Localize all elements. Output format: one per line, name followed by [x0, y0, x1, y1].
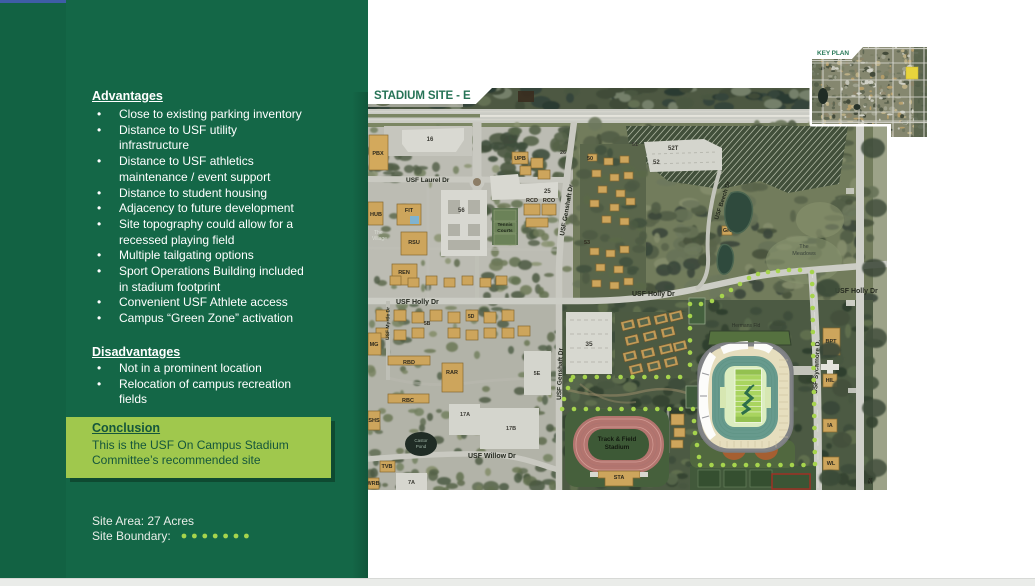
svg-text:RCD: RCD — [526, 198, 538, 204]
svg-text:56: 56 — [458, 208, 465, 214]
svg-text:5B: 5B — [424, 321, 431, 327]
svg-text:The: The — [799, 244, 808, 250]
svg-text:Track & Field: Track & Field — [598, 436, 637, 443]
svg-text:USF Myrtle Dr: USF Myrtle Dr — [385, 307, 392, 340]
svg-text:RAR: RAR — [446, 370, 458, 376]
svg-text:FIT: FIT — [405, 208, 414, 214]
svg-text:Stadium: Stadium — [605, 444, 630, 451]
svg-text:26: 26 — [560, 150, 566, 156]
svg-text:17A: 17A — [460, 412, 470, 418]
svg-text:RBD: RBD — [403, 360, 415, 366]
svg-text:USF Willow Dr: USF Willow Dr — [468, 453, 516, 460]
svg-text:Meadows: Meadows — [792, 251, 816, 257]
svg-text:TVB: TVB — [382, 464, 393, 470]
svg-text:52: 52 — [653, 160, 660, 166]
svg-text:35: 35 — [585, 341, 593, 348]
svg-text:St: St — [868, 478, 874, 484]
svg-text:SHS: SHS — [368, 418, 380, 424]
svg-text:USF Holly Dr: USF Holly Dr — [835, 288, 878, 295]
svg-text:Pond: Pond — [416, 444, 427, 449]
svg-text:5E: 5E — [534, 371, 541, 377]
svg-text:WL: WL — [827, 461, 836, 467]
svg-text:Courts: Courts — [497, 228, 513, 234]
svg-text:53: 53 — [584, 240, 590, 246]
svg-text:16: 16 — [427, 137, 434, 143]
svg-text:Village: Village — [372, 236, 387, 242]
svg-text:5D: 5D — [468, 314, 475, 320]
svg-text:RBC: RBC — [402, 398, 414, 404]
svg-text:25: 25 — [544, 189, 551, 195]
svg-text:WRB: WRB — [368, 481, 380, 487]
svg-text:Hermans Fld: Hermans Fld — [732, 323, 761, 329]
svg-text:7A: 7A — [408, 480, 415, 486]
svg-text:USF Laurel Dr: USF Laurel Dr — [406, 177, 450, 184]
svg-text:51: 51 — [632, 142, 638, 148]
svg-text:IA: IA — [827, 423, 833, 429]
svg-text:Tennis: Tennis — [497, 222, 512, 228]
svg-text:STA: STA — [614, 475, 625, 481]
svg-text:HUB: HUB — [370, 212, 382, 218]
svg-text:UPB: UPB — [514, 156, 526, 162]
svg-text:REN: REN — [398, 270, 410, 276]
svg-text:Castor: Castor — [414, 438, 428, 443]
svg-text:RSU: RSU — [408, 240, 420, 246]
svg-text:PBX: PBX — [372, 151, 384, 157]
svg-text:52T: 52T — [668, 146, 679, 152]
svg-text:USF Holly Dr: USF Holly Dr — [632, 291, 675, 298]
svg-text:MG: MG — [370, 342, 379, 348]
svg-text:50: 50 — [587, 156, 593, 162]
svg-text:USF Holly Dr: USF Holly Dr — [396, 299, 439, 306]
svg-text:RCO: RCO — [543, 198, 556, 204]
svg-text:17B: 17B — [506, 426, 516, 432]
